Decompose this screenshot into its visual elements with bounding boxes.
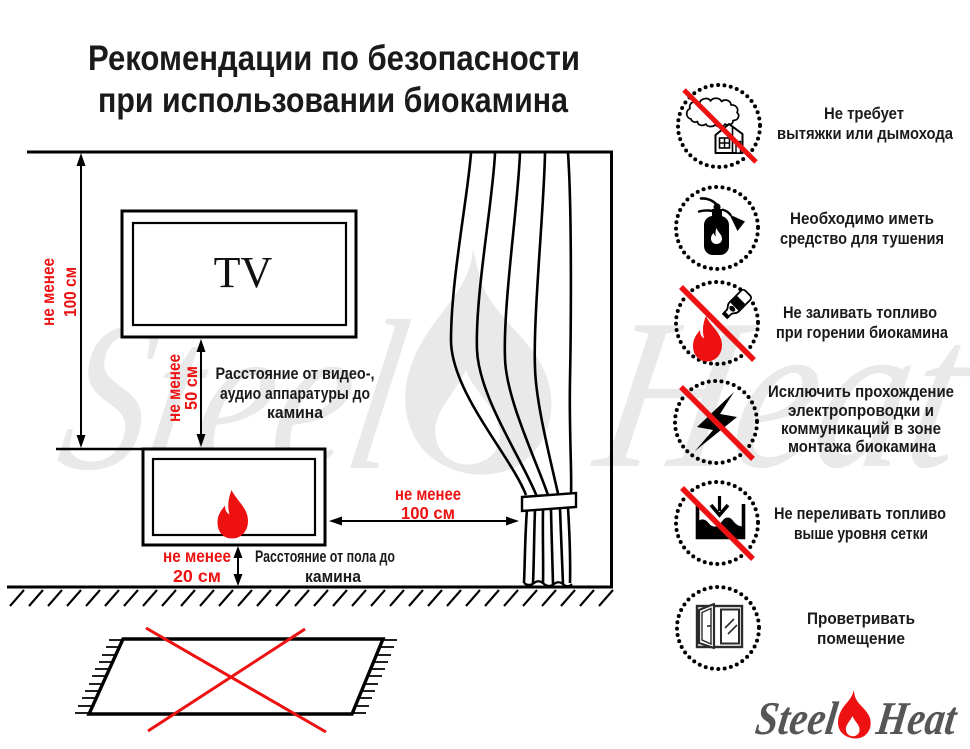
svg-text:Не требует: Не требует [824, 104, 904, 123]
svg-text:при использовании биокамина: при использовании биокамина [98, 81, 568, 120]
svg-text:Рекомендации по безопасности: Рекомендации по безопасности [88, 39, 580, 78]
svg-text:коммуникаций в зоне: коммуникаций в зоне [781, 419, 941, 438]
svg-text:Не заливать топливо: Не заливать топливо [783, 303, 937, 322]
svg-text:Проветривать: Проветривать [807, 609, 915, 628]
svg-text:50 см: 50 см [181, 366, 201, 410]
svg-text:монтажа биокамина: монтажа биокамина [788, 437, 936, 456]
svg-text:электропроводки и: электропроводки и [788, 401, 934, 420]
svg-text:Расстояние от пола до: Расстояние от пола до [255, 547, 395, 566]
svg-text:средство для тушения: средство для тушения [780, 229, 944, 248]
svg-text:100 см: 100 см [60, 267, 80, 317]
svg-text:TV: TV [214, 248, 273, 297]
svg-text:помещение: помещение [817, 629, 905, 648]
svg-text:Необходимо иметь: Необходимо иметь [790, 209, 934, 228]
svg-text:выше уровня сетки: выше уровня сетки [794, 524, 928, 543]
svg-text:Steel: Steel [752, 693, 841, 745]
svg-text:при горении биокамина: при горении биокамина [776, 323, 948, 342]
svg-text:Исключить прохождение: Исключить прохождение [768, 382, 954, 401]
svg-text:вытяжки или дымохода: вытяжки или дымохода [777, 124, 953, 143]
svg-text:камина: камина [267, 403, 323, 422]
svg-text:не менее: не менее [395, 484, 461, 504]
svg-text:20 см: 20 см [173, 566, 221, 586]
svg-text:камина: камина [305, 567, 361, 586]
svg-text:Heat: Heat [873, 693, 962, 745]
svg-text:аудио аппаратуры до: аудио аппаратуры до [220, 384, 370, 403]
svg-text:100 см: 100 см [401, 503, 455, 523]
svg-text:Расстояние от видео-,: Расстояние от видео-, [216, 364, 375, 383]
svg-text:не менее: не менее [163, 546, 231, 566]
svg-text:Не переливать топливо: Не переливать топливо [774, 504, 946, 523]
svg-text:не менее: не менее [38, 258, 58, 326]
